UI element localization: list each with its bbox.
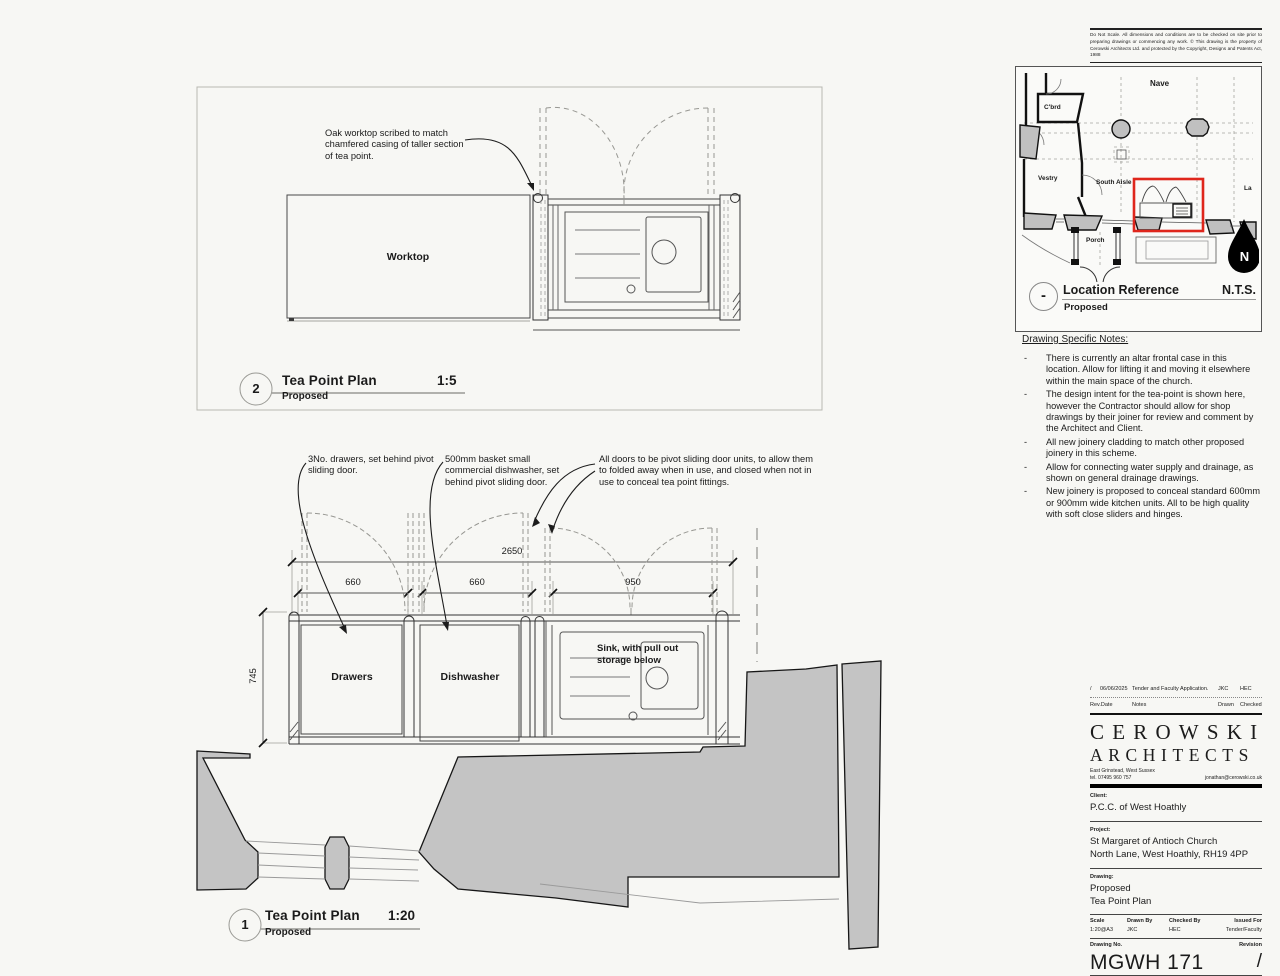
firm-tel: tel. 07495 960 757 xyxy=(1090,775,1155,782)
d1-scale: 1:20 xyxy=(388,908,415,923)
notes-heading: Drawing Specific Notes: xyxy=(1022,334,1262,345)
d1-annotation-doors: All doors to be pivot sliding door units… xyxy=(599,454,821,488)
note-item: -All new joinery cladding to match other… xyxy=(1022,437,1262,460)
rev-date: 06/06/2025 xyxy=(1100,686,1132,693)
project-line2: North Lane, West Hoathly, RH19 4PP xyxy=(1090,849,1262,862)
note-item: -Allow for connecting water supply and d… xyxy=(1022,462,1262,485)
firm-contact: East Grinstead, West Sussex tel. 07495 9… xyxy=(1090,768,1262,781)
d1-dim-660a: 660 xyxy=(328,577,378,587)
map-label-nave: Nave xyxy=(1150,79,1169,88)
map-label-cbrd: C'brd xyxy=(1044,104,1061,111)
project-section: Project: St Margaret of Antioch Church N… xyxy=(1090,822,1262,869)
drawing2-panel xyxy=(197,87,822,410)
notes-list: -There is currently an altar frontal cas… xyxy=(1022,353,1262,521)
map-label-vestry: Vestry xyxy=(1038,175,1058,182)
issued-for-label: Issued For xyxy=(1217,918,1262,924)
client-label: Client: xyxy=(1090,793,1262,799)
client-section: Client: P.C.C. of West Hoathly xyxy=(1090,788,1262,822)
revision-row: / 06/06/2025 Tender and Faculty Applicat… xyxy=(1090,686,1262,698)
revision-headers: Rev.Date Notes Drawn Checked xyxy=(1090,698,1262,715)
firm-name-line1: CEROWSKI xyxy=(1090,720,1262,745)
map-label-porch: Porch xyxy=(1086,237,1104,244)
d1-dim-660b: 660 xyxy=(452,577,502,587)
d2-annotation-oak-worktop: Oak worktop scribed to match chamfered c… xyxy=(325,128,467,162)
rev-date-header: Rev.Date xyxy=(1090,702,1132,709)
d1-sink-label: Sink, with pull out storage below xyxy=(597,643,697,667)
d1-title: Tea Point Plan xyxy=(265,908,360,923)
firm-name-line2: ARCHITECTS xyxy=(1090,745,1262,766)
disclaimer-note: Do Not Scale. All dimensions and conditi… xyxy=(1090,28,1262,63)
note-item: -New joinery is proposed to conceal stan… xyxy=(1022,486,1262,520)
drawing-no-label: Drawing No. xyxy=(1090,942,1122,948)
rev-mark: / xyxy=(1090,686,1100,693)
location-ref-bubble: - xyxy=(1029,282,1058,311)
drawing-number: MGWH 171 xyxy=(1090,951,1204,975)
drawing-sheet: { "disclaimer": "Do Not Scale. All dimen… xyxy=(0,0,1280,964)
d2-worktop-label: Worktop xyxy=(350,251,466,263)
checked-by-label: Checked By xyxy=(1169,918,1217,924)
d2-title: Tea Point Plan xyxy=(282,373,377,388)
wall-section xyxy=(197,661,881,949)
location-ref-title: Location Reference xyxy=(1063,283,1179,297)
title-block: / 06/06/2025 Tender and Faculty Applicat… xyxy=(1090,686,1262,976)
map-label-la: La xyxy=(1244,185,1252,192)
drawing-section: Drawing: Proposed Tea Point Plan xyxy=(1090,869,1262,916)
drawing-line2: Tea Point Plan xyxy=(1090,896,1262,909)
rev-drawn-header: Drawn xyxy=(1218,702,1240,709)
d2-scale: 1:5 xyxy=(437,373,457,388)
drawing-specific-notes: Drawing Specific Notes: -There is curren… xyxy=(1022,334,1262,523)
issued-for-value: Tender/Faculty xyxy=(1217,927,1262,933)
d1-dim-950: 950 xyxy=(608,577,658,587)
d1-dim-overall: 2650 xyxy=(487,546,537,556)
location-ref-scale: N.T.S. xyxy=(1222,283,1256,297)
rev-notes-header: Notes xyxy=(1132,702,1218,709)
location-ref-rule xyxy=(1062,299,1256,300)
note-item: -The design intent for the tea-point is … xyxy=(1022,389,1262,435)
d1-annotation-drawers: 3No. drawers, set behind pivot sliding d… xyxy=(308,454,436,477)
d1-annotation-dishwasher: 500mm basket small commercial dishwasher… xyxy=(445,454,565,488)
scale-value: 1:20@A3 xyxy=(1090,927,1127,933)
note-item: -There is currently an altar frontal cas… xyxy=(1022,353,1262,387)
rev-drawn: JKC xyxy=(1218,686,1240,693)
firm-email: jonathan@cerowski.co.uk xyxy=(1205,775,1262,782)
d1-dim-745: 745 xyxy=(248,656,258,696)
number-labels: Drawing No. Revision xyxy=(1090,939,1262,948)
d1-subtitle: Proposed xyxy=(265,927,311,938)
location-ref-subtitle: Proposed xyxy=(1064,302,1108,313)
d1-number-bubble: 1 xyxy=(229,917,261,932)
project-label: Project: xyxy=(1090,827,1262,833)
rev-checked: HEC xyxy=(1240,686,1262,693)
rev-notes: Tender and Faculty Application. xyxy=(1132,686,1218,693)
north-arrow-letter: N xyxy=(1236,249,1253,264)
drawing-label: Drawing: xyxy=(1090,874,1262,880)
d1-drawers-label: Drawers xyxy=(302,671,402,683)
meta-section: Scale Drawn By Checked By Issued For 1:2… xyxy=(1090,915,1262,939)
d1-dishwasher-label: Dishwasher xyxy=(420,671,520,683)
rev-checked-header: Checked xyxy=(1240,702,1262,709)
d2-number-bubble: 2 xyxy=(240,381,272,396)
drawn-by-value: JKC xyxy=(1127,927,1169,933)
project-line1: St Margaret of Antioch Church xyxy=(1090,836,1262,849)
client-value: P.C.C. of West Hoathly xyxy=(1090,802,1262,815)
drawn-by-label: Drawn By xyxy=(1127,918,1169,924)
d2-subtitle: Proposed xyxy=(282,391,328,402)
scale-label: Scale xyxy=(1090,918,1127,924)
firm-address: East Grinstead, West Sussex xyxy=(1090,768,1155,775)
revision-label: Revision xyxy=(1239,942,1262,948)
number-row: MGWH 171 / xyxy=(1090,948,1262,976)
map-label-south-aisle: South Aisle xyxy=(1096,179,1132,186)
revision-value: / xyxy=(1257,951,1262,975)
drawing-line1: Proposed xyxy=(1090,883,1262,896)
checked-by-value: HEC xyxy=(1169,927,1217,933)
location-reference-panel: Nave C'brd Vestry South Aisle La Porch N… xyxy=(1015,66,1262,332)
